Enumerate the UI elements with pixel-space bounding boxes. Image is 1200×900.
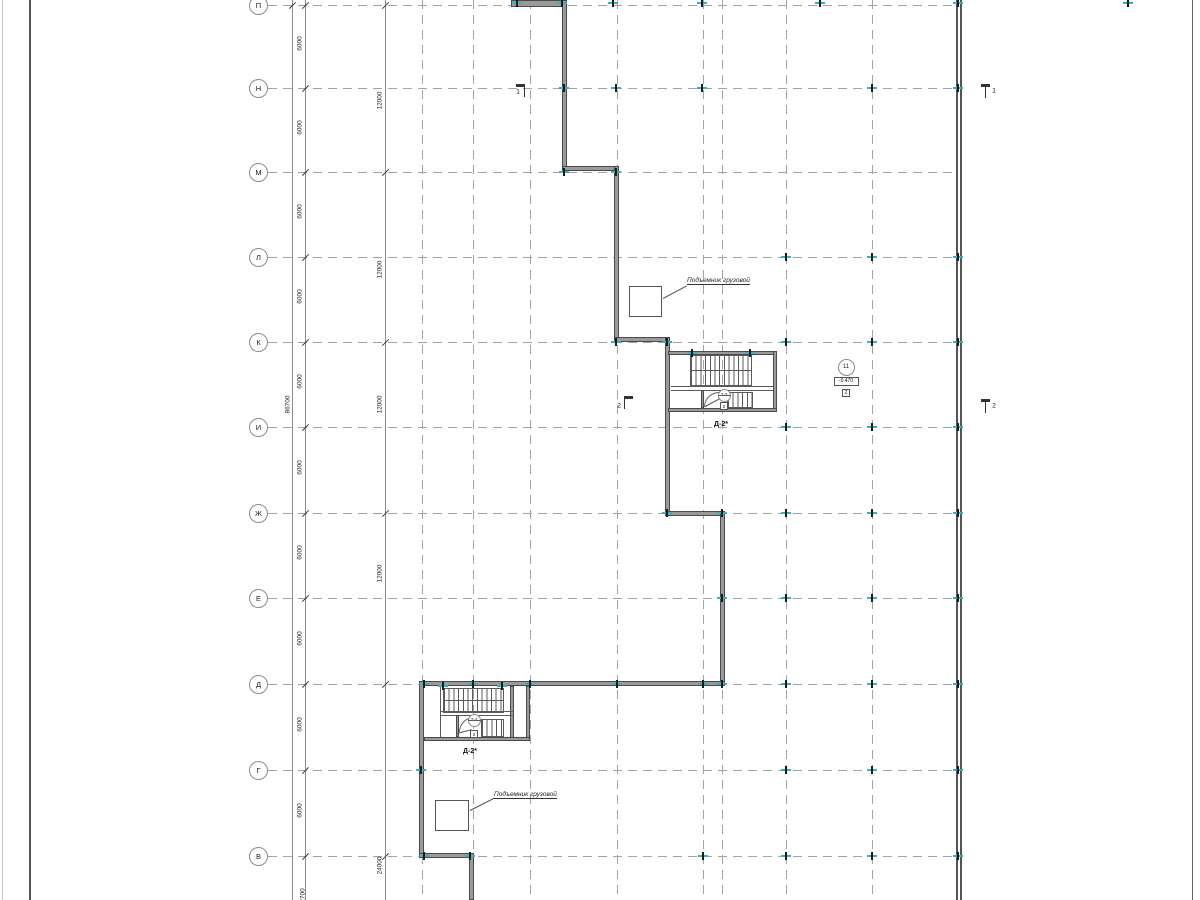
dimension-bay: 6000 [297,609,304,669]
column-marker-black-tick [423,852,425,860]
building-boundary-line [956,0,958,900]
column-marker-black-tick [561,0,563,7]
wall-segment [469,853,474,900]
dimension-bay: 6000 [297,438,304,498]
wall-segment [419,681,725,686]
column-marker-black-tick [691,349,693,357]
column-marker-black-tick [871,253,873,261]
dimension-chain-line [305,0,306,900]
column-marker-black-tick [871,509,873,517]
row-axis-label: П [256,1,261,10]
column-marker-black-tick [442,682,444,690]
column-marker-black-tick [423,680,425,688]
dimension-bay: 6000 [297,352,304,412]
row-axis-label: Н [256,84,261,93]
row-axis-label: К [256,338,260,347]
column-marker-black-tick [469,852,471,860]
dimension-bay: 6000 [297,98,304,158]
column-marker-black-tick [957,423,959,431]
grid-column-line [872,0,873,900]
sheet-frame-line [2,0,3,900]
column-marker-black-tick [501,682,503,690]
column-marker-black-tick [721,680,723,688]
column-marker-black-tick [871,84,873,92]
grid-row-line [268,257,958,258]
stair-flight-treads [727,392,753,408]
row-axis-circle: В [249,847,268,866]
grid-column-line [786,0,787,900]
row-axis-label: Д [256,680,261,689]
grid-row-line [268,513,958,514]
stair-type-label: Д-2* [463,748,477,755]
column-marker-black-tick [957,338,959,346]
grid-column-line [530,0,531,900]
column-marker-black-tick [516,0,518,7]
column-marker-black-tick [472,680,474,688]
column-marker-black-tick [563,168,565,176]
column-marker-black-tick [957,0,959,7]
column-marker-black-tick [785,594,787,602]
column-marker-black-tick [616,680,618,688]
room-tag-divider [468,720,481,721]
row-axis-circle: К [249,333,268,352]
room-tag-label: 7-4 [471,717,478,722]
column-marker-black-tick [785,338,787,346]
column-marker-black-tick [1127,0,1129,7]
column-marker-black-tick [666,338,668,346]
row-axis-circle: И [249,418,268,437]
grid-row-line [268,770,958,771]
column-marker-black-tick [615,84,617,92]
grid-column-line [473,0,474,900]
column-marker-black-tick [871,594,873,602]
row-axis-label: Л [256,253,261,262]
row-axis-circle: Д [249,675,268,694]
column-marker-black-tick [529,680,531,688]
level-mark-box: -0.470 [834,377,859,386]
stair-landing-line [671,386,773,387]
building-boundary-line [960,0,962,900]
column-marker-black-tick [957,509,959,517]
grid-row-line [268,856,958,857]
wall-segment [665,511,725,516]
row-axis-label: Г [256,766,260,775]
lift-shaft [435,800,469,831]
column-marker-black-tick [871,680,873,688]
callout-node-label: 11 [843,364,849,370]
column-marker-black-tick [871,338,873,346]
dimension-bay: 6000 [297,14,304,74]
column-marker-black-tick [420,766,422,774]
wall-segment [526,686,530,741]
dimension-bay: 6000 [297,267,304,327]
row-axis-label: В [256,852,261,861]
lift-label-leader [663,285,687,299]
lift-label: Подъемник грузовой [687,277,750,285]
callout-node-circle: 11 [838,359,855,376]
dimension-bay: 6000 [297,182,304,242]
floor-plan-canvas: ПНМЛКИЖЕДГВ86700600060006000600060006000… [0,0,1200,900]
section-mark-stem [524,84,525,97]
stair-flight-divider [690,370,752,371]
dimension-outer: 12000 [377,375,384,435]
column-marker-black-tick [785,509,787,517]
row-axis-circle: Л [249,248,268,267]
wall-segment [510,686,514,741]
row-axis-circle: Г [249,761,268,780]
dimension-partial: 2700 [300,866,307,900]
column-marker-black-tick [563,84,565,92]
section-mark-stem [985,399,986,413]
dimension-outer: 24000 [377,836,384,896]
column-marker-black-tick [957,680,959,688]
dimension-bay: 6000 [297,781,304,841]
row-axis-label: М [255,168,261,177]
column-marker-black-tick [702,680,704,688]
row-axis-label: И [256,423,261,432]
section-mark-stem [624,396,625,409]
grid-column-line [703,0,704,900]
column-marker-black-tick [785,423,787,431]
column-marker-black-tick [721,594,723,602]
column-marker-black-tick [702,852,704,860]
section-mark-label: 2 [992,403,996,410]
column-marker-black-tick [819,0,821,7]
section-mark-flag [624,396,633,399]
grid-column-line [722,0,723,900]
room-tag-divider [718,395,731,396]
section-mark-label: 1 [516,89,520,96]
column-marker-black-tick [701,84,703,92]
section-mark-label: 2 [617,403,621,410]
column-marker-black-tick [785,680,787,688]
dimension-chain-line [292,0,293,900]
dimension-outer: 12000 [377,240,384,300]
wall-segment [665,337,670,516]
column-marker-black-tick [957,253,959,261]
section-mark-stem [985,84,986,98]
wall-segment [773,351,777,412]
row-axis-circle: Е [249,589,268,608]
grid-row-line [268,427,958,428]
column-marker-black-tick [612,0,614,7]
stair-flight-treads [481,719,504,737]
dimension-total: 86700 [285,375,292,435]
column-marker-black-tick [615,168,617,176]
column-marker-black-tick [957,852,959,860]
grid-row-line [268,598,958,599]
dimension-bay: 6000 [297,523,304,583]
column-marker-black-tick [666,509,668,517]
sheet-frame-line [29,0,31,900]
column-marker-black-tick [721,509,723,517]
column-marker-black-tick [615,338,617,346]
column-marker-black-tick [785,852,787,860]
column-marker-black-tick [871,766,873,774]
column-marker-black-tick [785,253,787,261]
lift-label: Подъемник грузовой [494,791,557,799]
door-tag-box: 2 [470,730,478,738]
column-marker-black-tick [957,84,959,92]
stair-edge-line [440,686,441,737]
stair-landing-line [441,711,514,712]
grid-column-line [617,0,618,900]
row-axis-circle: М [249,163,268,182]
dimension-chain-line [385,0,386,900]
room-tag-label: 7-3 [721,392,728,397]
column-marker-black-tick [957,766,959,774]
column-marker-black-tick [701,0,703,7]
row-axis-label: Е [256,594,261,603]
column-marker-black-tick [871,423,873,431]
stair-type-label: Д-2* [714,421,728,428]
section-mark-label: 1 [992,88,996,95]
row-axis-label: Ж [255,509,262,518]
row-axis-circle: П [249,0,268,15]
row-axis-circle: Н [249,79,268,98]
sheet-frame-line [1192,0,1193,900]
row-axis-circle: Ж [249,504,268,523]
stair-flight-divider [443,700,504,701]
column-marker-black-tick [749,349,751,357]
column-marker-black-tick [957,594,959,602]
lift-shaft [629,286,662,317]
dimension-outer: 12000 [377,544,384,604]
column-marker-black-tick [871,852,873,860]
column-marker-black-tick [785,766,787,774]
dimension-bay: 6000 [297,695,304,755]
detail-tag-box: 2 [842,389,850,397]
dimension-outer: 12000 [377,71,384,131]
wall-segment [614,166,619,342]
door-tag-box: 2 [720,402,728,410]
